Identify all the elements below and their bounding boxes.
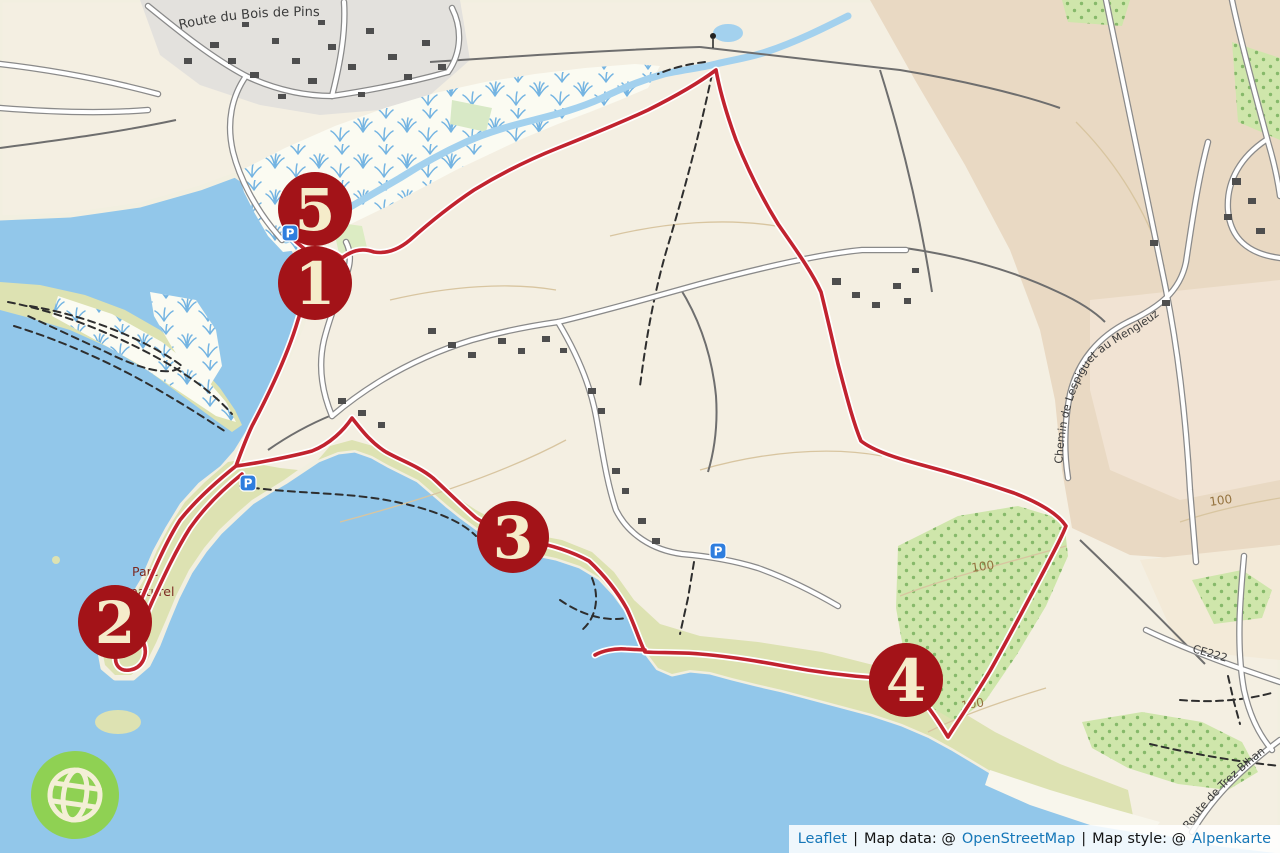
marker-3-number: 3 <box>493 504 533 572</box>
alpenkarte-link[interactable]: Alpenkarte <box>1192 831 1271 847</box>
map-canvas[interactable]: Route du Bois de Pins Chemin de Lespigue… <box>0 0 1280 853</box>
parking-icon-2: P <box>240 475 256 491</box>
attribution-separator: | <box>853 831 858 847</box>
marker-1-number: 1 <box>295 250 335 318</box>
svg-text:P: P <box>286 227 295 241</box>
marker-3[interactable]: 3 <box>477 501 549 573</box>
parking-icon-3: P <box>710 543 726 559</box>
marker-1[interactable]: 1 <box>278 246 352 320</box>
marker-2-number: 2 <box>95 589 135 657</box>
svg-text:P: P <box>244 477 253 491</box>
marker-4[interactable]: 4 <box>869 643 943 717</box>
map-data-prefix: Map data: @ <box>864 831 956 847</box>
parking-icon-1: P <box>282 225 298 241</box>
marker-5-number: 5 <box>295 176 335 244</box>
attribution-bar: Leaflet | Map data: @ OpenStreetMap | Ma… <box>789 825 1280 853</box>
attribution-separator-2: | <box>1081 831 1086 847</box>
map[interactable]: Route du Bois de Pins Chemin de Lespigue… <box>0 0 1280 853</box>
marker-4-number: 4 <box>886 647 926 715</box>
svg-text:P: P <box>714 545 723 559</box>
map-style-prefix: Map style: @ <box>1092 831 1186 847</box>
openstreetmap-link[interactable]: OpenStreetMap <box>962 831 1075 847</box>
leaflet-link[interactable]: Leaflet <box>798 831 847 847</box>
marker-2[interactable]: 2 <box>78 585 152 659</box>
